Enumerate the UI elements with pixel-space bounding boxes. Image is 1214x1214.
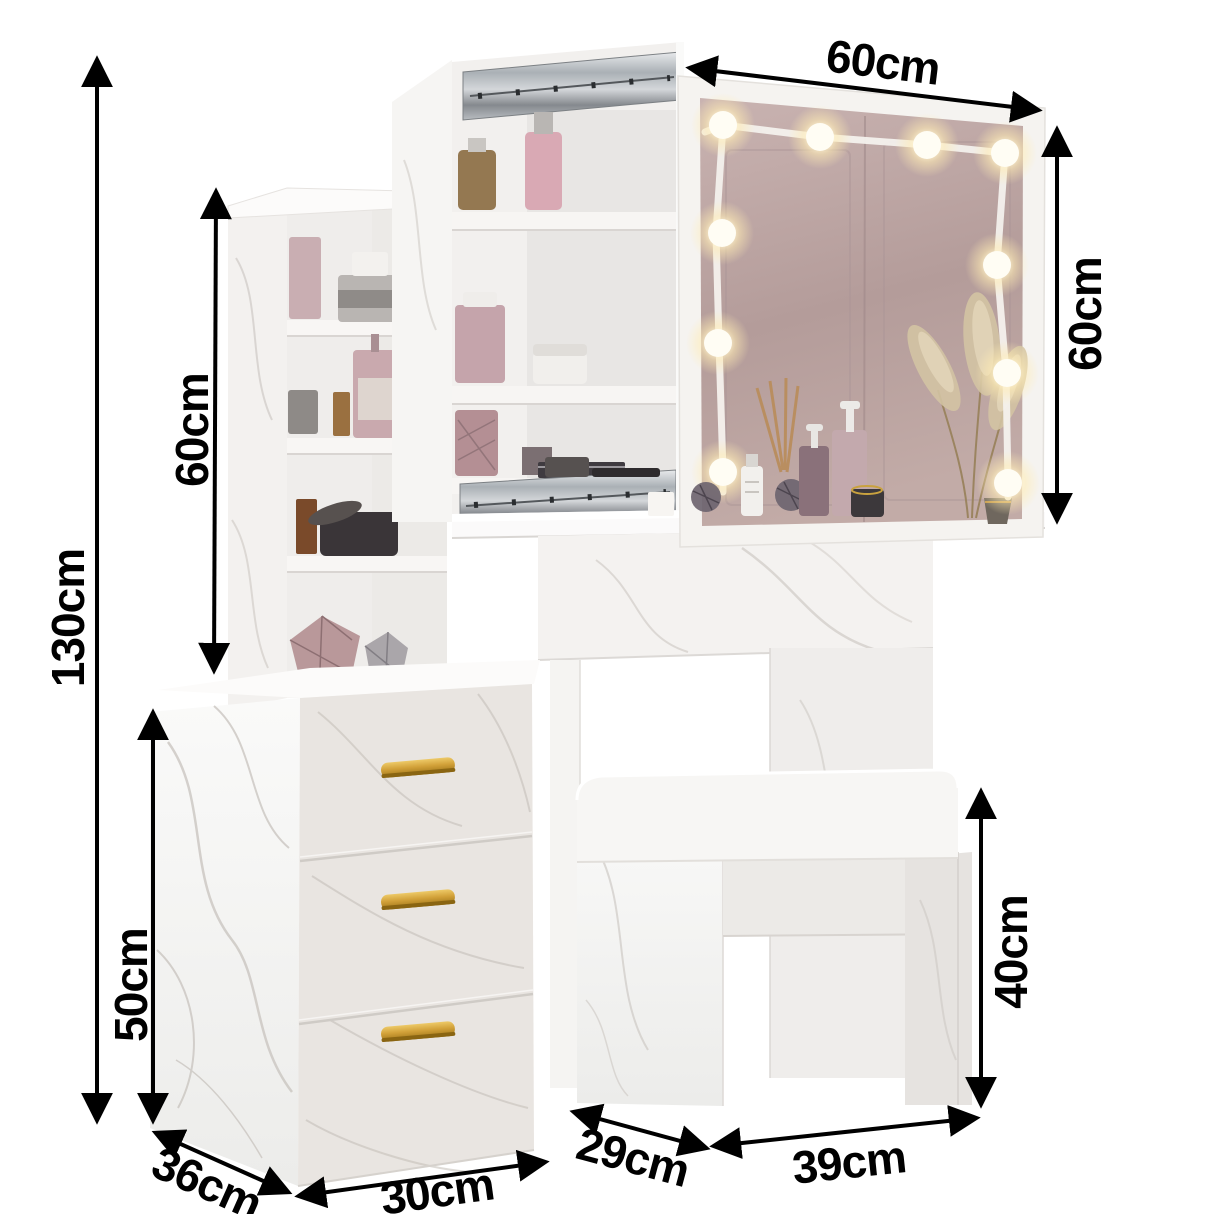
stool-cushion	[577, 770, 958, 862]
dim-label-stool-height: 40cm	[988, 895, 1034, 1009]
vanity-illustration	[0, 0, 1214, 1214]
desk-apron	[538, 528, 933, 660]
dim-label-cabinet-height: 50cm	[108, 928, 154, 1042]
product-dimension-diagram: 130cm 60cm 60cm 60cm 50cm 36cm 30cm 29cm…	[0, 0, 1214, 1214]
dim-label-total-height: 130cm	[45, 549, 91, 687]
drawer-cabinet	[150, 660, 540, 1186]
dim-label-mirror-height: 60cm	[1062, 257, 1108, 371]
dim-label-stool-width: 39cm	[790, 1133, 908, 1191]
upper-cabinet	[392, 42, 684, 526]
desk-left-leg	[550, 660, 580, 1088]
dim-label-mirror-width: 60cm	[824, 32, 942, 92]
dim-label-shelf-tower-height: 60cm	[169, 373, 215, 487]
